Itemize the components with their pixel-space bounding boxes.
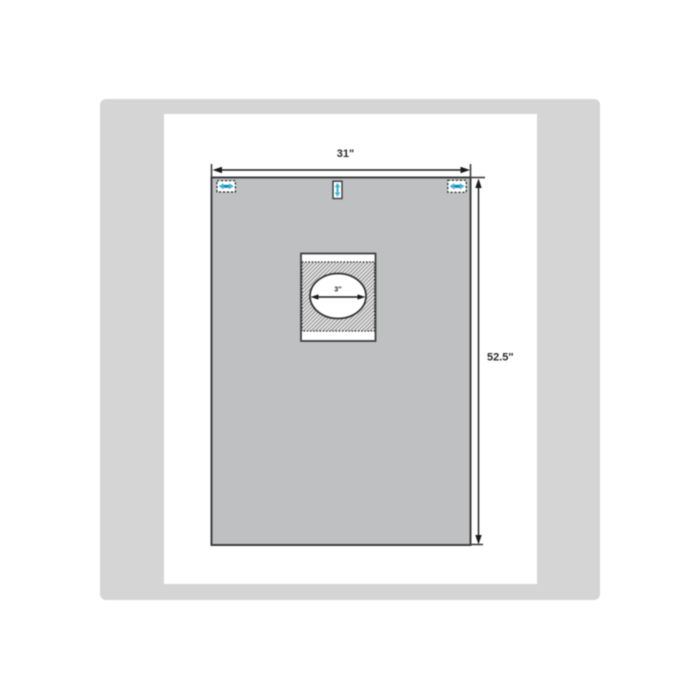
svg-text:52.5": 52.5": [487, 352, 514, 364]
svg-text:31": 31": [337, 148, 354, 160]
svg-text:3": 3": [334, 285, 341, 294]
